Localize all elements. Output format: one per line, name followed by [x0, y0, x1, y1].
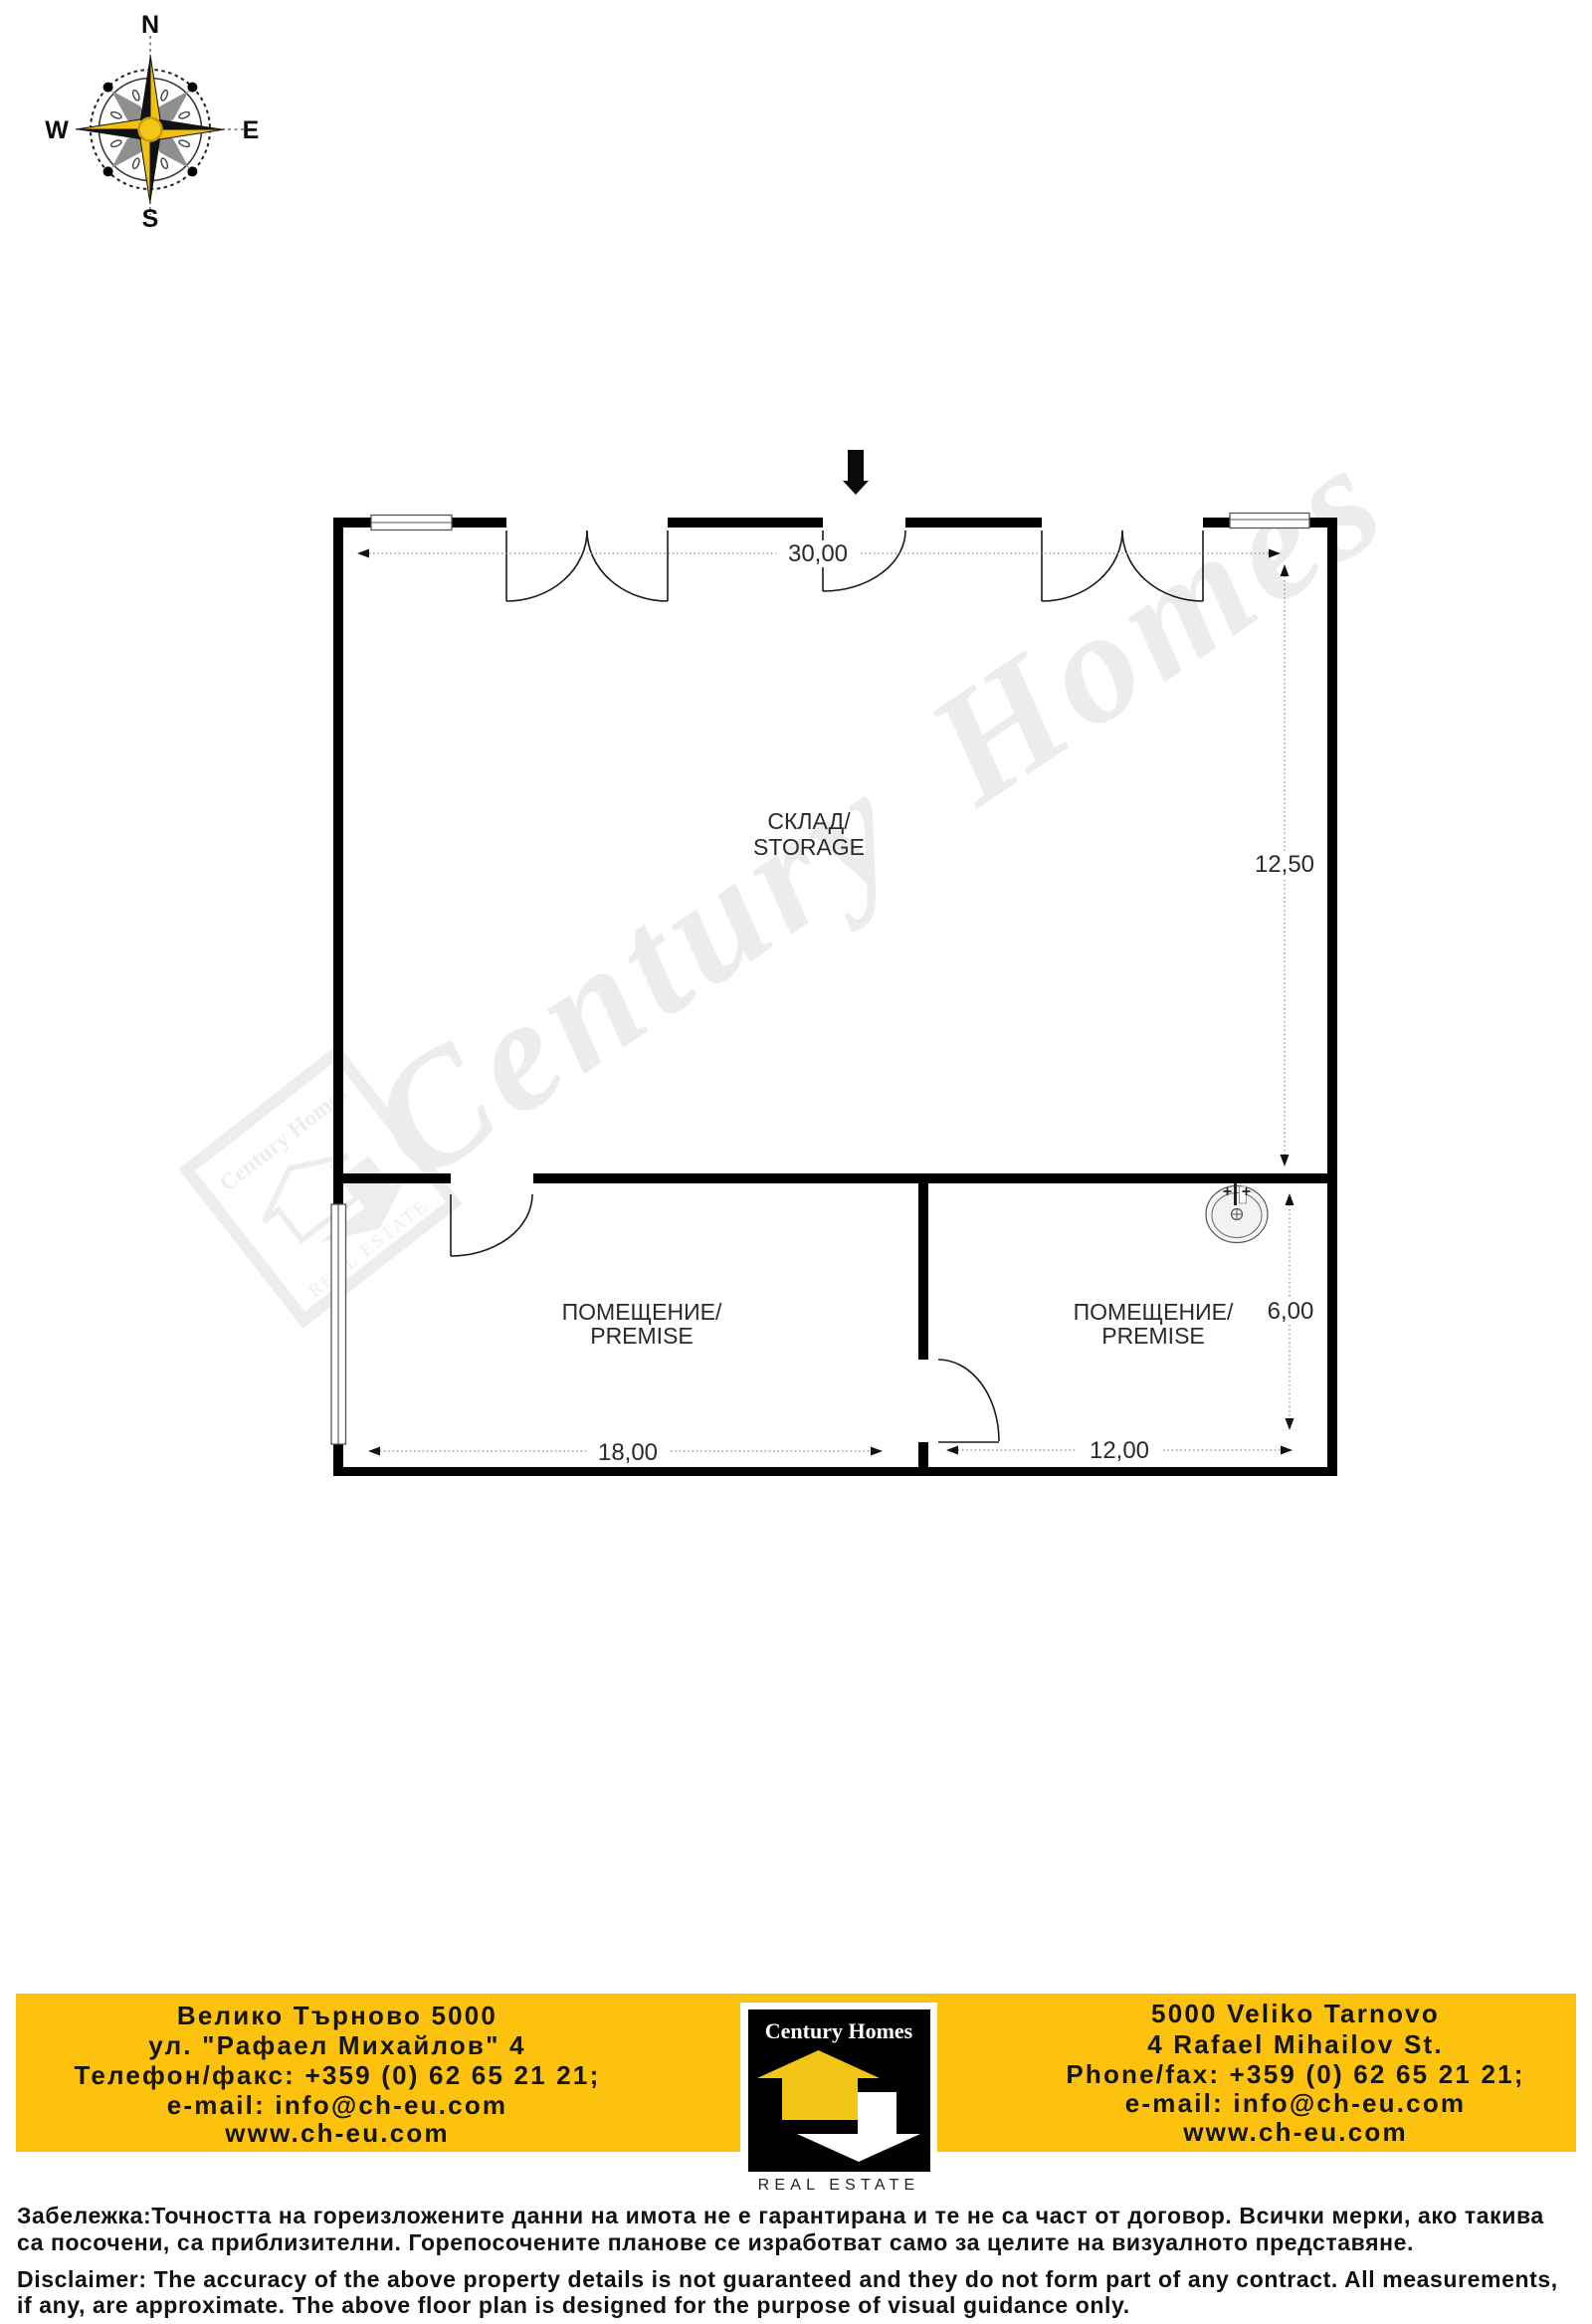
- svg-text:E: E: [243, 116, 260, 144]
- svg-text:ПОМЕЩЕНИЕ/: ПОМЕЩЕНИЕ/: [1074, 1299, 1234, 1325]
- svg-text:30,00: 30,00: [788, 540, 848, 567]
- svg-text:PREMISE: PREMISE: [1101, 1323, 1205, 1349]
- svg-text:if any, are approximate. The a: if any, are approximate. The above floor…: [17, 2292, 1130, 2318]
- svg-text:S: S: [142, 205, 159, 233]
- svg-text:18,00: 18,00: [598, 1439, 658, 1466]
- svg-text:ПОМЕЩЕНИЕ/: ПОМЕЩЕНИЕ/: [562, 1299, 722, 1325]
- svg-text:Велико Търново 5000: Велико Търново 5000: [177, 2001, 497, 2030]
- svg-text:N: N: [141, 11, 159, 39]
- svg-text:5000 Veliko Tarnovo: 5000 Veliko Tarnovo: [1151, 1999, 1440, 2028]
- svg-text:12,00: 12,00: [1090, 1437, 1149, 1464]
- svg-text:e-mail: info@ch-eu.com: e-mail: info@ch-eu.com: [1125, 2088, 1466, 2118]
- svg-text:Disclaimer: The accuracy of th: Disclaimer: The accuracy of the above pr…: [17, 2266, 1558, 2292]
- svg-text:STORAGE: STORAGE: [753, 834, 865, 860]
- svg-text:e-mail: info@ch-eu.com: e-mail: info@ch-eu.com: [167, 2090, 507, 2120]
- svg-text:6,00: 6,00: [1268, 1298, 1314, 1325]
- svg-text:12,50: 12,50: [1255, 851, 1314, 878]
- svg-text:СКЛАД/: СКЛАД/: [767, 808, 851, 834]
- svg-text:REAL ESTATE: REAL ESTATE: [758, 2177, 920, 2194]
- svg-text:www.ch-eu.com: www.ch-eu.com: [224, 2118, 450, 2148]
- svg-text:Телефон/факс: +359 (0) 62 65 2: Телефон/факс: +359 (0) 62 65 21 21;: [75, 2060, 601, 2090]
- svg-text:4 Rafael Mihailov St.: 4 Rafael Mihailov St.: [1147, 2029, 1444, 2059]
- svg-text:PREMISE: PREMISE: [590, 1323, 694, 1349]
- svg-text:www.ch-eu.com: www.ch-eu.com: [1182, 2117, 1408, 2147]
- svg-text:ул. "Рафаел Михайлов" 4: ул. "Рафаел Михайлов" 4: [148, 2030, 525, 2060]
- svg-text:Century Homes: Century Homes: [765, 2018, 913, 2043]
- svg-text:Phone/fax: +359 (0) 62 65 21 2: Phone/fax: +359 (0) 62 65 21 21;: [1066, 2059, 1524, 2089]
- svg-text:са посочени, са приблизителни.: са посочени, са приблизителни. Горепосоч…: [17, 2229, 1414, 2255]
- svg-text:W: W: [45, 116, 69, 144]
- svg-text:Забележка:Точността на гореизл: Забележка:Точността на гореизложените да…: [17, 2203, 1544, 2228]
